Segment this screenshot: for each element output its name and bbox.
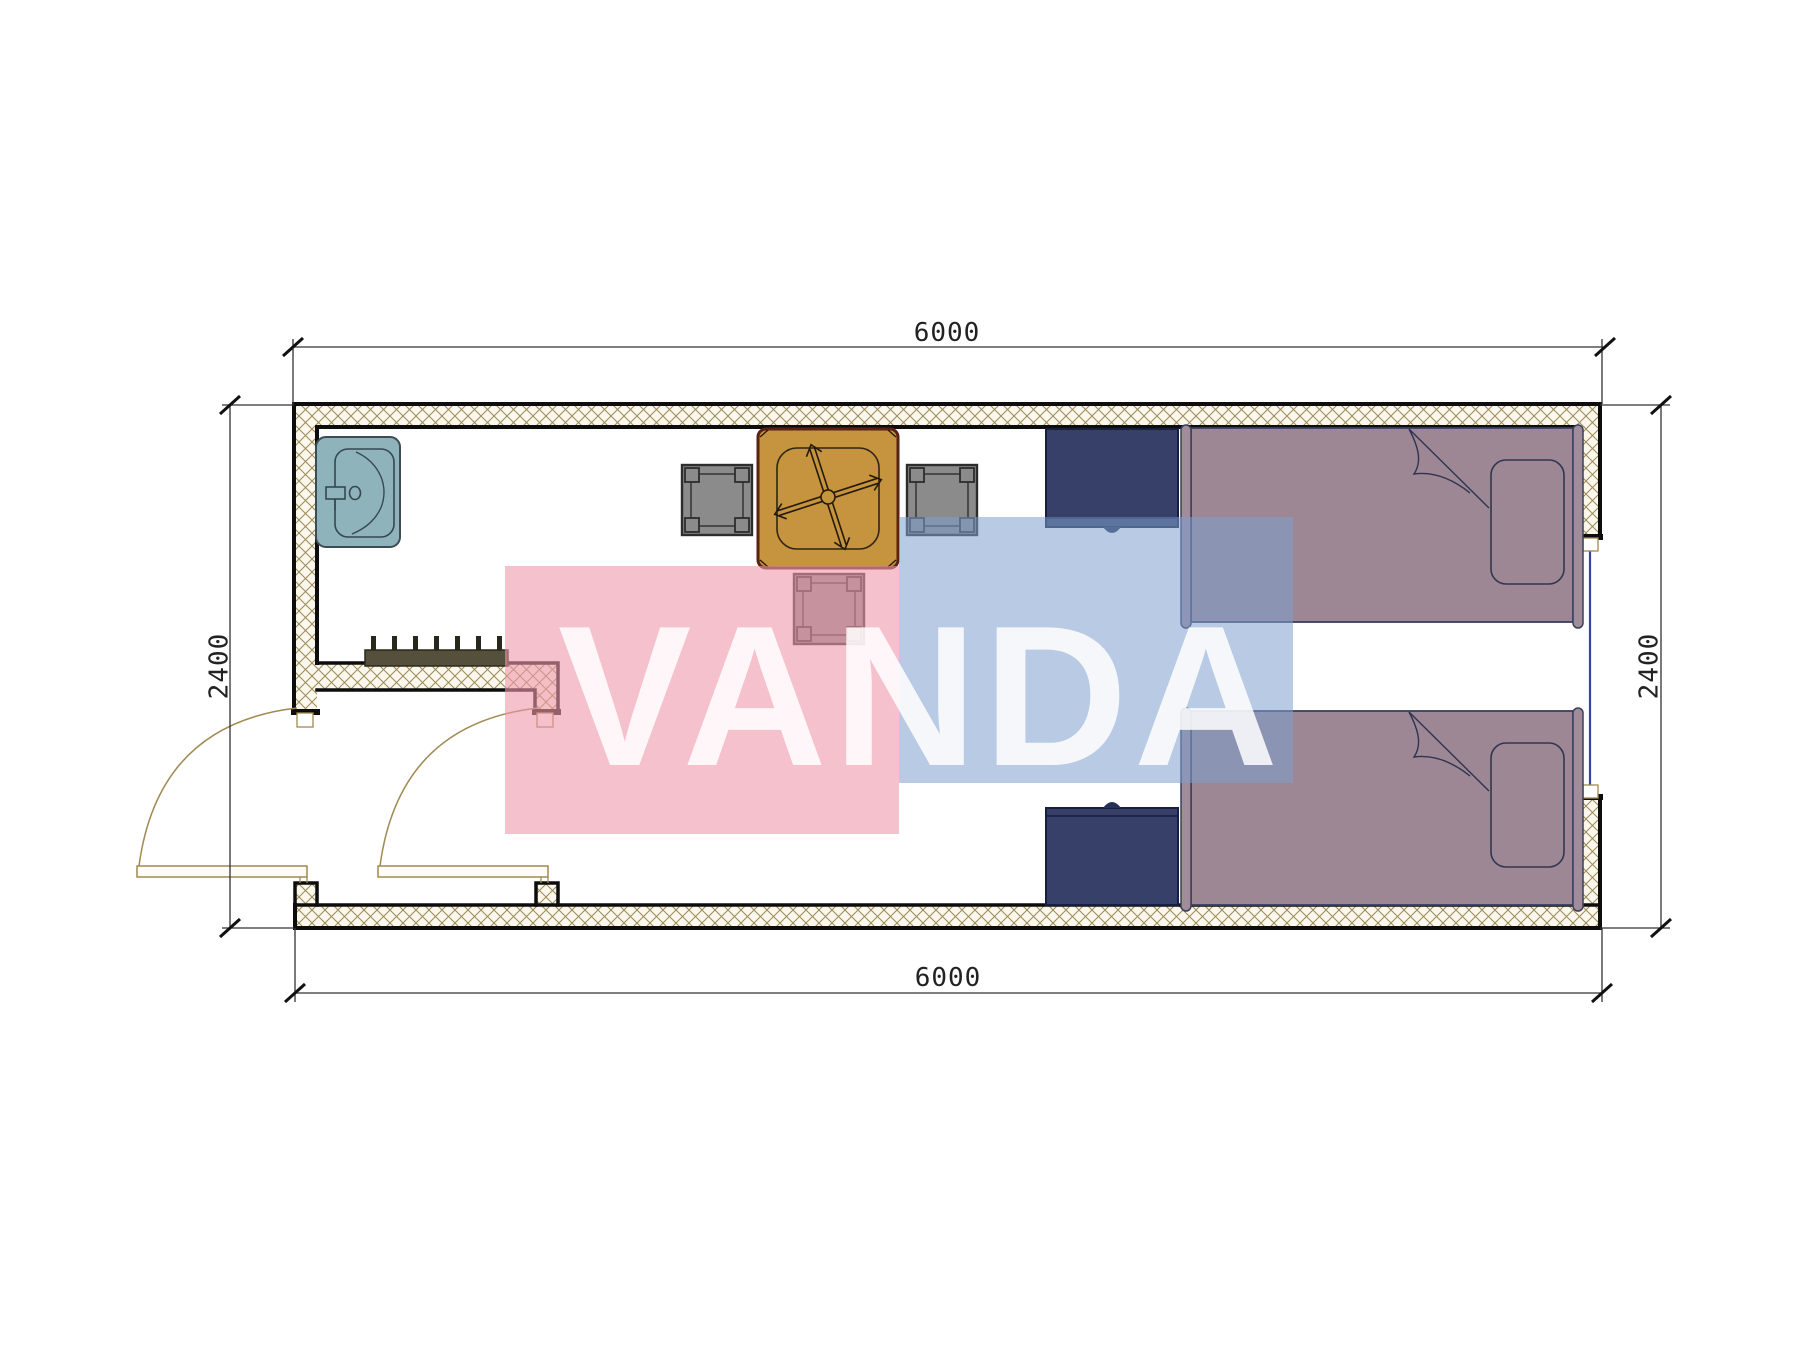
stool-left [682, 465, 752, 535]
wall-bottom [295, 905, 1600, 928]
watermark-blue-block [899, 517, 1293, 783]
dining-table [758, 427, 899, 568]
coat-rack-bar [365, 650, 508, 666]
door-leaf [137, 866, 307, 877]
wall-left [294, 404, 317, 712]
watermark-pink-block [505, 566, 899, 834]
door-swing-arc [139, 708, 297, 866]
dim-right: 2400 [1635, 633, 1665, 700]
nightstand-bottom [1046, 802, 1178, 905]
dim-left: 2400 [205, 633, 235, 700]
dim-bottom: 6000 [915, 963, 982, 993]
nightstand-knob [1103, 802, 1121, 808]
window-jamb-bottom [1583, 785, 1598, 798]
bed-headboard [1573, 425, 1583, 628]
bed-headboard [1573, 708, 1583, 911]
door-jamb-symbol [297, 713, 313, 727]
window-jamb-top [1583, 538, 1598, 551]
floor-plan-canvas: 6000 6000 2400 2400 VANDA [0, 0, 1800, 1350]
floor-plan-drawing: 6000 6000 2400 2400 [0, 0, 1800, 1350]
entry-door [137, 708, 313, 883]
coat-rack [365, 636, 508, 666]
dim-top: 6000 [914, 318, 981, 348]
window-right-wall [1583, 538, 1598, 798]
door-leaf [378, 866, 548, 877]
wall-top [294, 404, 1600, 427]
sink-faucet [326, 487, 345, 499]
sink [316, 437, 400, 547]
